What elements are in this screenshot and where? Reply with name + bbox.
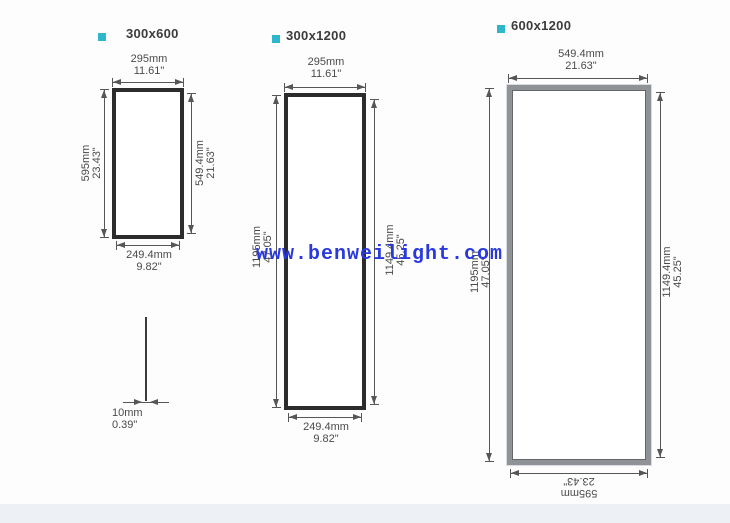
arrow-left-icon xyxy=(150,399,158,405)
arrow-up-icon xyxy=(486,89,492,97)
legend-square-icon xyxy=(272,35,280,43)
panel-side-profile xyxy=(145,317,147,401)
panel-title: 600x1200 xyxy=(511,18,571,33)
top-dimension-label: 295mm 11.61" xyxy=(308,56,345,80)
arrow-left-icon xyxy=(509,75,517,81)
dimension-inch: 9.82" xyxy=(126,261,172,273)
watermark-text: www.benweilight.com xyxy=(256,243,503,266)
dimension-inch: 9.82" xyxy=(303,433,349,445)
dimension-inch: 11.61" xyxy=(131,65,168,77)
arrow-down-icon xyxy=(273,399,279,407)
left-dimension-label: 595mm 23.43" xyxy=(81,145,103,182)
dimension-mm: 295mm xyxy=(131,53,168,65)
dimension-inch: 0.39" xyxy=(112,419,143,431)
arrow-right-icon xyxy=(175,79,183,85)
dimension-mm: 549.4mm xyxy=(558,48,604,60)
panel-title: 300x600 xyxy=(126,26,179,41)
dimension-mm: 10mm xyxy=(112,407,143,419)
panel-title: 300x1200 xyxy=(286,28,346,43)
arrow-down-icon xyxy=(371,396,377,404)
right-dimension-line xyxy=(191,93,192,234)
bottom-dimension-line xyxy=(510,473,648,474)
right-dimension-label: 549.4mm 21.63" xyxy=(195,140,217,186)
dimension-inch: 21.63" xyxy=(206,140,217,186)
dimension-inch: 23.43" xyxy=(92,145,103,182)
bottom-dimension-label: 249.4mm 9.82" xyxy=(126,249,172,273)
panel-dimension-diagram: 300x600 295mm 11.61" 595mm 23.43" 549.4m… xyxy=(0,0,730,523)
panel-outline xyxy=(112,88,184,239)
top-dimension-label: 549.4mm 21.63" xyxy=(558,48,604,72)
arrow-down-icon xyxy=(486,453,492,461)
arrow-down-icon xyxy=(657,449,663,457)
arrow-right-icon xyxy=(171,242,179,248)
arrow-up-icon xyxy=(188,94,194,102)
arrow-left-icon xyxy=(289,414,297,420)
bottom-dimension-label: 249.4mm 9.82" xyxy=(303,421,349,445)
arrow-up-icon xyxy=(371,100,377,108)
arrow-right-icon xyxy=(353,414,361,420)
thickness-dimension-line xyxy=(123,402,169,403)
arrow-left-icon xyxy=(113,79,121,85)
legend-square-icon xyxy=(98,33,106,41)
arrow-right-icon xyxy=(134,399,142,405)
arrow-left-icon xyxy=(511,470,519,476)
bottom-strip xyxy=(0,504,730,523)
arrow-left-icon xyxy=(117,242,125,248)
arrow-up-icon xyxy=(101,90,107,98)
dimension-inch: 11.61" xyxy=(308,68,345,80)
top-dimension-label: 295mm 11.61" xyxy=(131,53,168,77)
top-dimension-line xyxy=(284,87,366,88)
thickness-label: 10mm 0.39" xyxy=(112,407,143,431)
arrow-up-icon xyxy=(273,96,279,104)
arrow-up-icon xyxy=(657,93,663,101)
dimension-inch: 21.63" xyxy=(558,60,604,72)
dimension-mm: 295mm xyxy=(308,56,345,68)
dimension-mm: 249.4mm xyxy=(126,249,172,261)
arrow-down-icon xyxy=(101,229,107,237)
arrow-left-icon xyxy=(285,84,293,90)
arrow-down-icon xyxy=(188,225,194,233)
dimension-mm: 595mm xyxy=(561,487,598,499)
arrow-right-icon xyxy=(639,470,647,476)
dimension-mm: 249.4mm xyxy=(303,421,349,433)
top-dimension-line xyxy=(508,78,648,79)
panel-outline xyxy=(507,85,651,465)
right-dimension-label: 1149.4mm 45.25" xyxy=(662,246,684,297)
left-dimension-line xyxy=(104,89,105,238)
dimension-inch: 45.25" xyxy=(673,246,684,297)
top-dimension-line xyxy=(112,82,184,83)
bottom-dimension-line xyxy=(288,417,362,418)
bottom-dimension-label-upside-down: 595mm 23.43" xyxy=(561,475,598,499)
arrow-right-icon xyxy=(357,84,365,90)
dimension-inch: 23.43" xyxy=(561,475,598,487)
bottom-dimension-line xyxy=(116,245,180,246)
legend-square-icon xyxy=(497,25,505,33)
arrow-right-icon xyxy=(639,75,647,81)
